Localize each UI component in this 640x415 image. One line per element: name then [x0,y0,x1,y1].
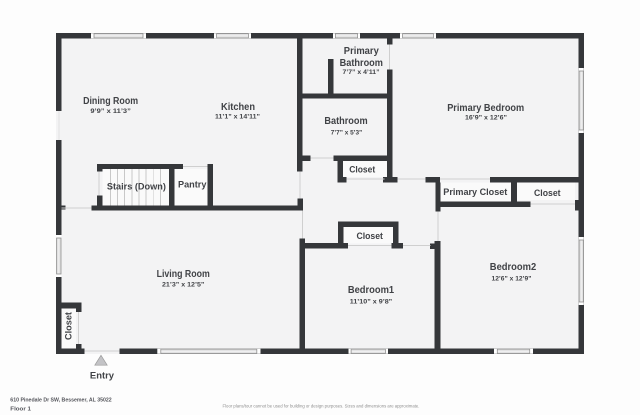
svg-text:Floor plans/tour cannot be use: Floor plans/tour cannot be used for buil… [223,404,420,409]
svg-text:Closet: Closet [356,231,383,241]
svg-text:Closet: Closet [64,312,74,340]
svg-text:12’6” x 12’9”: 12’6” x 12’9” [492,276,532,283]
svg-text:Dining Room: Dining Room [83,96,138,107]
svg-text:Entry: Entry [90,370,115,381]
svg-text:16’9” x 12’6”: 16’9” x 12’6” [465,115,507,122]
svg-text:Primary Closet: Primary Closet [443,187,507,197]
svg-text:Bathroom: Bathroom [324,116,367,127]
svg-text:Floor 1: Floor 1 [10,407,31,413]
svg-text:Primary: Primary [344,46,379,57]
svg-text:Closet: Closet [349,165,375,175]
svg-text:Bedroom2: Bedroom2 [490,262,537,273]
svg-text:Closet: Closet [534,188,561,198]
svg-text:Kitchen: Kitchen [221,102,255,113]
svg-text:9’9” x 11’3”: 9’9” x 11’3” [90,108,131,115]
svg-text:Primary Bedroom: Primary Bedroom [447,103,524,114]
svg-text:610 Pinedale Dr SW, Bessemer,: 610 Pinedale Dr SW, Bessemer, AL 35022 [10,397,111,403]
svg-text:21’3” x 12’5”: 21’3” x 12’5” [162,281,204,288]
svg-text:11’10” x 9’8”: 11’10” x 9’8” [350,298,393,305]
svg-text:7’7” x 4’11”: 7’7” x 4’11” [343,69,380,76]
svg-text:Pantry: Pantry [178,180,207,190]
svg-text:7’7” x 5’3”: 7’7” x 5’3” [331,130,363,137]
svg-text:Bedroom1: Bedroom1 [348,285,395,296]
svg-text:Living Room: Living Room [157,269,210,280]
svg-text:Bathroom: Bathroom [340,58,383,69]
svg-text:11’1” x 14’11”: 11’1” x 14’11” [215,113,260,120]
svg-text:Stairs (Down): Stairs (Down) [107,181,166,191]
